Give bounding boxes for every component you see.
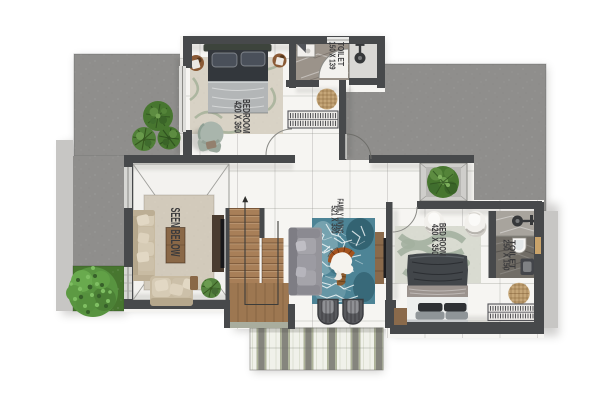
- svg-text:420 X 360: 420 X 360: [232, 101, 243, 133]
- svg-text:521 X 330: 521 X 330: [330, 206, 340, 234]
- svg-text:150 X 139: 150 X 139: [328, 42, 338, 70]
- svg-text:250 X 150: 250 X 150: [502, 240, 512, 271]
- svg-text:420 X 350: 420 X 350: [430, 224, 440, 255]
- svg-text:SEEN BELOW: SEEN BELOW: [168, 208, 183, 257]
